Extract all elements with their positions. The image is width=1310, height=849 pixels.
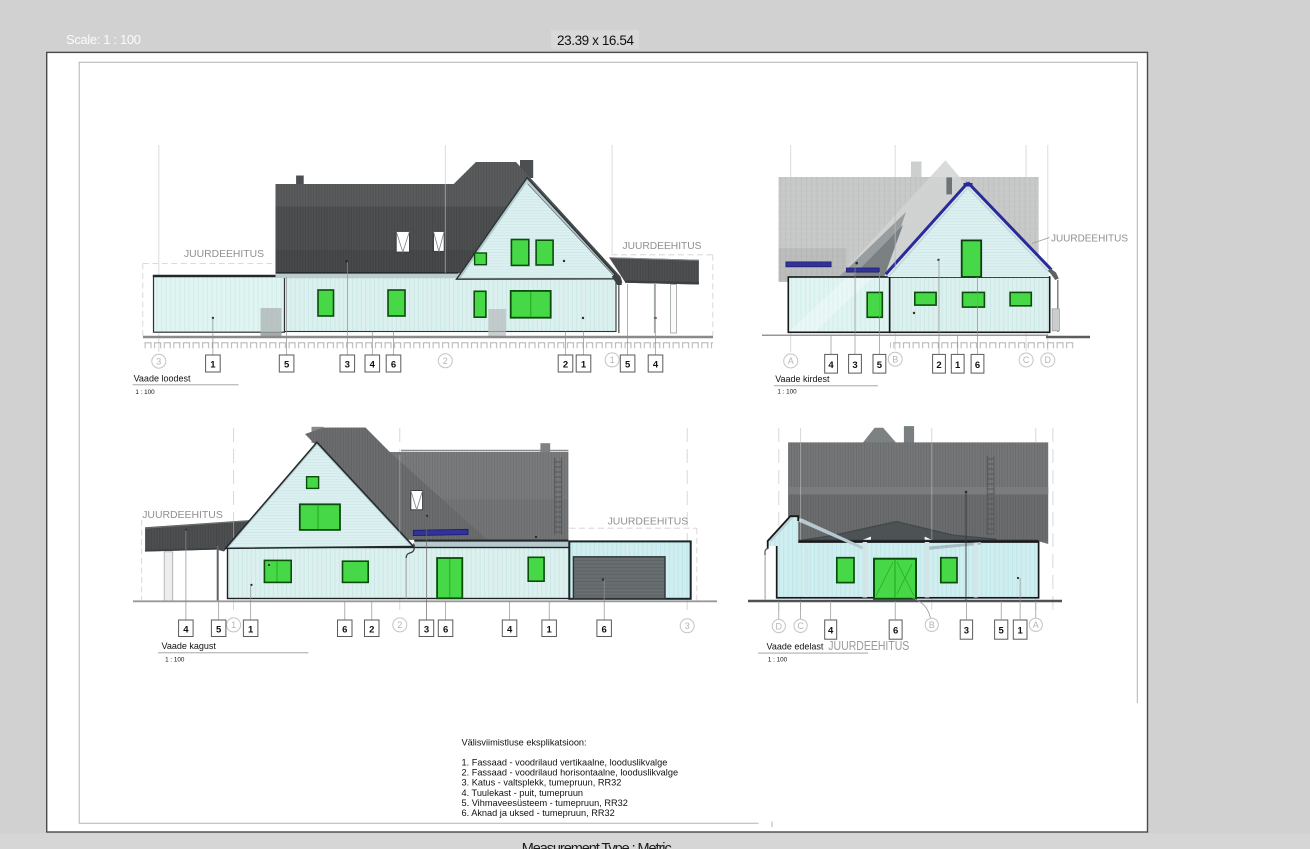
svg-text:4: 4 [507,624,513,635]
svg-text:C: C [797,621,804,631]
svg-text:3: 3 [964,626,969,637]
svg-text:Vaade kirdest: Vaade kirdest [775,374,830,384]
svg-text:2: 2 [443,356,448,366]
svg-text:4. Tuulekast - puit, tumepruun: 4. Tuulekast - puit, tumepruun [462,788,584,798]
svg-text:A: A [788,356,794,366]
svg-text:23.39 x 16.54: 23.39 x 16.54 [557,33,634,48]
svg-text:Vaade kagust: Vaade kagust [162,641,217,651]
svg-text:JUURDEEHITUS: JUURDEEHITUS [623,240,702,252]
svg-text:1: 1 [955,360,961,371]
svg-text:2: 2 [563,360,568,371]
svg-text:6: 6 [342,624,347,635]
svg-text:5: 5 [625,360,631,371]
svg-text:D: D [776,621,783,631]
svg-text:Scale: 1 : 100: Scale: 1 : 100 [66,32,141,47]
svg-text:1: 1 [581,360,587,371]
svg-text:C: C [1023,355,1030,365]
svg-text:JUURDEEHITUS: JUURDEEHITUS [1051,233,1128,245]
svg-text:1: 1 [547,624,553,635]
svg-text:JUURDEEHITUS: JUURDEEHITUS [184,248,264,260]
svg-text:5. Vihmaveesüsteem - tumepruun: 5. Vihmaveesüsteem - tumepruun, RR32 [462,798,628,808]
svg-text:5: 5 [284,360,290,371]
svg-text:B: B [929,620,935,630]
svg-text:1 : 100: 1 : 100 [768,657,788,664]
svg-text:A: A [1033,620,1039,630]
svg-text:6: 6 [893,626,898,637]
svg-text:5: 5 [877,360,883,371]
svg-text:6: 6 [391,360,396,371]
svg-text:D: D [1045,355,1052,365]
svg-text:1 : 100: 1 : 100 [165,657,185,664]
svg-text:4: 4 [828,626,834,637]
svg-text:1 : 100: 1 : 100 [777,389,797,396]
svg-text:3: 3 [424,624,429,635]
svg-text:1: 1 [248,624,254,635]
svg-text:6: 6 [443,624,448,635]
svg-text:5: 5 [216,624,222,635]
svg-text:Vaade loodest: Vaade loodest [134,374,191,384]
svg-text:2. Fassaad - voodrilaud horiso: 2. Fassaad - voodrilaud horisontaalne, l… [462,768,679,778]
svg-text:JUURDEEHITUS: JUURDEEHITUS [142,509,223,521]
svg-text:1: 1 [610,355,615,365]
svg-text:3: 3 [852,360,857,371]
svg-text:Välisviimistluse eksplikatsioo: Välisviimistluse eksplikatsioon: [462,738,587,748]
svg-text:2: 2 [369,624,374,635]
svg-text:3. Katus - valtsplekk, tumepru: 3. Katus - valtsplekk, tumepruun, RR32 [462,778,622,788]
svg-text:3: 3 [685,621,690,631]
svg-text:Vaade edelast: Vaade edelast [767,642,824,652]
svg-text:3: 3 [345,360,350,371]
svg-text:Measurement Type : Metric: Measurement Type : Metric [522,841,672,849]
svg-text:6. Aknad ja uksed - tumepruun,: 6. Aknad ja uksed - tumepruun, RR32 [462,808,615,818]
svg-text:JUURDEEHITUS: JUURDEEHITUS [828,639,909,653]
svg-text:3: 3 [156,356,161,366]
svg-text:1: 1 [210,360,216,371]
svg-text:4: 4 [370,360,376,371]
svg-text:6: 6 [975,360,980,371]
svg-text:JUURDEEHITUS: JUURDEEHITUS [608,516,689,528]
svg-text:1 : 100: 1 : 100 [135,389,155,396]
svg-text:4: 4 [183,624,189,635]
svg-text:1: 1 [1017,626,1023,637]
svg-text:5: 5 [999,626,1005,637]
svg-text:2: 2 [936,360,941,371]
svg-text:B: B [892,354,898,364]
svg-text:1: 1 [231,620,236,630]
svg-text:2: 2 [397,620,402,630]
svg-text:6: 6 [602,624,607,635]
svg-text:1. Fassaad - voodrilaud vertik: 1. Fassaad - voodrilaud vertikaalne, loo… [462,758,668,768]
svg-text:4: 4 [653,360,659,371]
svg-text:4: 4 [828,360,834,371]
